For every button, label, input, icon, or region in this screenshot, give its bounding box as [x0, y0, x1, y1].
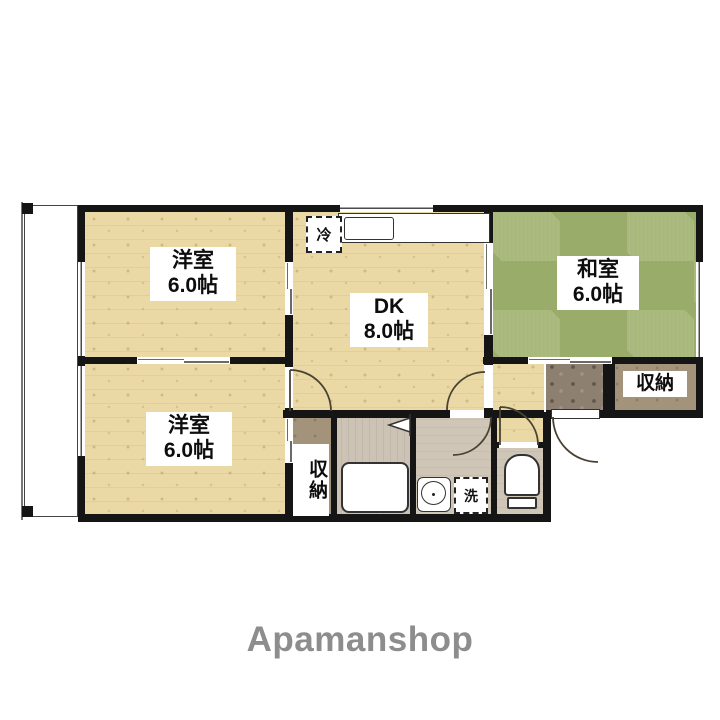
- apamanshop-watermark: Apamanshop: [0, 620, 720, 660]
- door-arc-dk-hall: [447, 372, 485, 410]
- door-arc-washroom: [453, 417, 491, 455]
- room-west-bottom-label: 洋室 6.0帖: [146, 412, 232, 466]
- door-arc-room-dk: [290, 370, 331, 411]
- door-arc-toilet: [500, 407, 538, 445]
- door-arc-entry: [553, 417, 598, 462]
- closet-entrance-label: 収納: [623, 371, 687, 397]
- floorplan: 冷 洗 洋室 6.0帖 DK: [0, 0, 720, 720]
- japanese-room-label: 和室 6.0帖: [557, 256, 639, 310]
- closet-middle-label: 収納: [293, 444, 329, 516]
- door-swing-overlay: [0, 0, 720, 720]
- dining-kitchen-label: DK 8.0帖: [350, 293, 428, 347]
- bath-folding-door-icon: [389, 414, 410, 436]
- room-west-top-label: 洋室 6.0帖: [150, 247, 236, 301]
- floorplan-image: 冷 洗 洋室 6.0帖 DK: [0, 0, 720, 720]
